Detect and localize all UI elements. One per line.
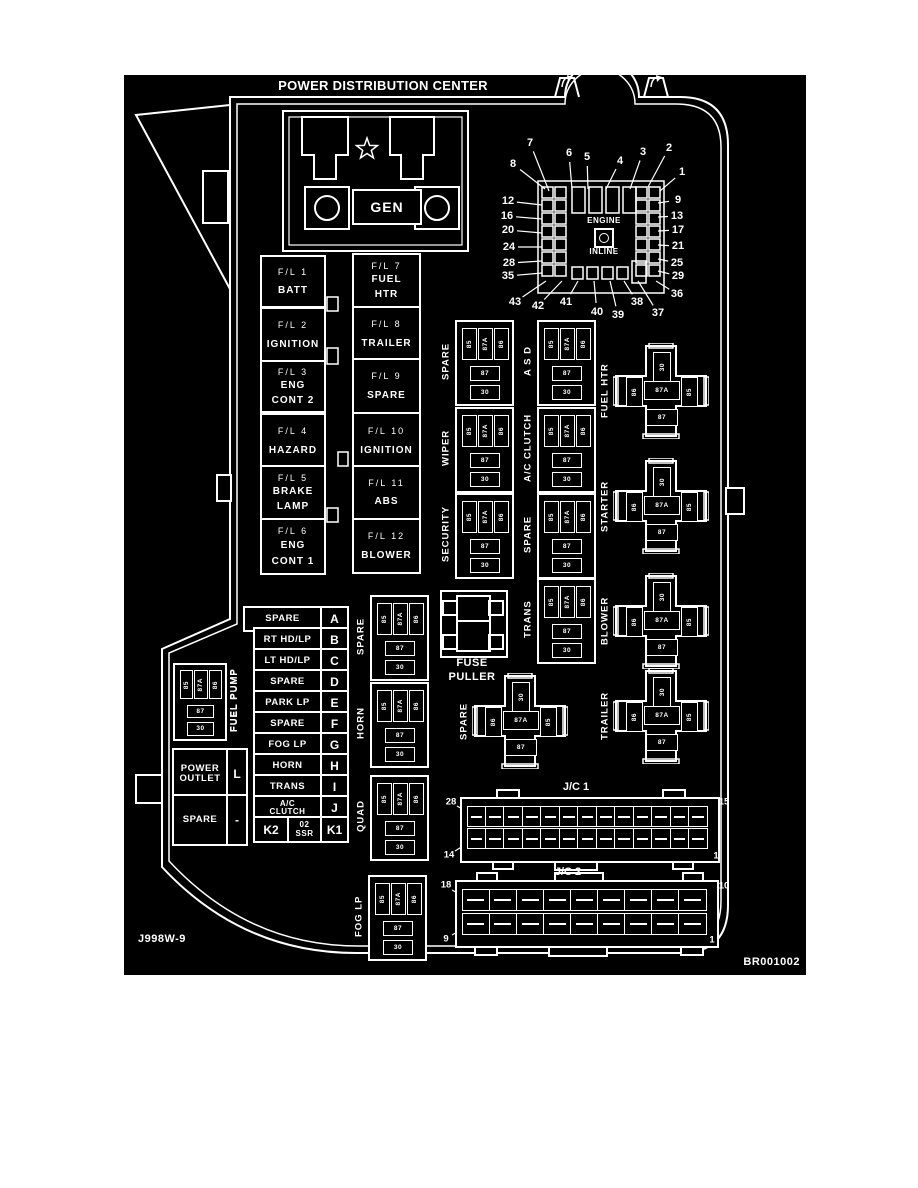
jc-corner-number: 15 (719, 797, 730, 808)
cross-pin: 87A (644, 381, 680, 400)
fuse-list-line: PARK LP (265, 698, 310, 708)
pentastar-icon (357, 138, 378, 158)
jc-corner-number: 1 (713, 851, 718, 862)
jc-pin-dash (508, 838, 520, 840)
pdc-diagram: POWER DISTRIBUTION CENTER GEN ENGINE INL… (124, 75, 806, 975)
jc-corner-number: 1 (709, 935, 714, 946)
power-outlet-letter: - (226, 796, 246, 844)
pin-label: 85 (381, 615, 388, 623)
relay-pin-87: 87 (470, 539, 500, 554)
mini-fuse-cavity (587, 267, 598, 279)
relay-label: TRANS (521, 578, 535, 660)
jc-pin-cell (570, 913, 599, 935)
relay-pin-85: 85 (544, 328, 559, 360)
callout-line (606, 169, 616, 189)
cross-pin: 85 (681, 607, 698, 637)
power-outlet-letter: L (226, 750, 246, 798)
pin-label: 85 (548, 427, 555, 435)
jc-pin-dash (637, 838, 649, 840)
doc-ref-left: J998W-9 (138, 933, 186, 945)
relay-pin-87A: 87A (393, 603, 408, 635)
pin-label: 87 (481, 457, 489, 464)
fl-id: F/L 6 (278, 526, 308, 536)
pin-label: 86 (580, 598, 587, 606)
jc-pin-cell (516, 913, 545, 935)
jc-pin-cell (651, 889, 680, 911)
jc-pin-dash (489, 838, 501, 840)
pin-label: 87 (196, 708, 204, 715)
fl-id: F/L 7 (371, 261, 401, 271)
relay-pin-87A: 87A (560, 586, 575, 618)
pin-label: 87A (655, 712, 668, 719)
fuel-pump-relay-label: FUEL PUMP (227, 663, 242, 737)
callout-line (648, 156, 665, 187)
pin-label: 85 (381, 795, 388, 803)
fusible-link-right-4: F/L 11ABS (352, 465, 421, 520)
relay-pin-30: 30 (385, 660, 415, 675)
k1-label: K1 (320, 818, 347, 841)
fl-name-line: LAMP (277, 501, 309, 513)
fuse-number: 24 (503, 241, 515, 253)
fuse-number: 12 (502, 195, 514, 207)
jc-pin-cell (670, 828, 690, 849)
relay-pin-87A: 87A (478, 415, 493, 447)
relay-pin-30: 30 (385, 747, 415, 762)
mini-fuse-cavity (636, 187, 647, 198)
fuse-number: 29 (672, 270, 684, 282)
relay-pin-85: 85 (377, 690, 392, 722)
pin-label: 30 (481, 389, 489, 396)
mini-fuse-cavity (555, 252, 566, 263)
pin-label: 30 (481, 476, 489, 483)
jc-pin-dash (563, 838, 575, 840)
jc-pin-dash (692, 838, 704, 840)
cross-pin: 85 (681, 702, 698, 732)
cross-relay-label: FUEL HTR (598, 343, 612, 439)
relay-pin-30: 30 (187, 722, 214, 736)
fl-id: F/L 1 (278, 267, 308, 277)
jc-pin-dash (655, 838, 667, 840)
relay-label: WIPER (439, 407, 453, 489)
jc-pin-dash (618, 816, 630, 818)
jc-pin-dash (576, 899, 593, 901)
jc-pin-dash (637, 816, 649, 818)
jc-pin-cell (559, 806, 579, 827)
power-outlet-label: POWEROUTLET (174, 750, 226, 798)
fuse-number: 2 (666, 142, 672, 154)
pin-label: 86 (631, 713, 638, 721)
cross-relay-0: 308687A8587 (613, 343, 709, 439)
jc-pin-dash (494, 923, 511, 925)
page: POWER DISTRIBUTION CENTER GEN ENGINE INL… (0, 0, 918, 1188)
fuse-number: 8 (510, 158, 516, 170)
pin-label: 30 (394, 944, 402, 951)
cross-pin: 87 (646, 524, 678, 541)
pin-label: 87A (655, 387, 668, 394)
callout-line (656, 281, 669, 289)
fuse-number: 25 (671, 257, 683, 269)
fuse-puller-graphic (440, 590, 508, 658)
fuse-number: 20 (502, 224, 514, 236)
fuse-number: 7 (527, 137, 533, 149)
maxi-fuse-cavity (589, 187, 602, 213)
relay-pin-86: 86 (409, 690, 424, 722)
relay-pin-87A: 87A (194, 670, 208, 699)
gen-post (302, 117, 348, 179)
mini-fuse-cavity (542, 252, 553, 263)
relay-label: QUAD (354, 775, 368, 857)
jc-pin-cell (614, 828, 634, 849)
pin-label: 85 (548, 513, 555, 521)
relay-label: SPARE (354, 595, 368, 677)
pin-label: 86 (580, 340, 587, 348)
jc-label: J/C 2 (555, 866, 581, 878)
gen-label: GEN (352, 189, 422, 225)
jc-pin-cell (651, 913, 680, 935)
fuse-number: 4 (617, 155, 623, 167)
jc-corner-number: 18 (441, 880, 452, 891)
pin-label: 87 (396, 825, 404, 832)
pin-label: 87A (395, 892, 402, 905)
pin-label: 85 (686, 713, 693, 721)
pin-label: 87A (397, 699, 404, 712)
gen-bay-inner (289, 117, 462, 245)
fl-id: F/L 10 (368, 426, 405, 436)
pin-label: 87 (394, 925, 402, 932)
pin-label: 30 (659, 363, 666, 371)
relay-pin-86: 86 (576, 328, 591, 360)
relay-pin-87A: 87A (391, 883, 406, 915)
relay-pin-30: 30 (470, 558, 500, 573)
relay-pin-87: 87 (552, 624, 582, 639)
mini-fuse-cavity (649, 213, 660, 224)
fuse-number: 36 (671, 288, 683, 300)
fuse-number: 43 (509, 296, 521, 308)
pin-label: 86 (631, 503, 638, 511)
cross-pin: 86 (626, 702, 643, 732)
jc-pin-cell (597, 913, 626, 935)
fl-id: F/L 9 (371, 371, 401, 381)
pin-label: 30 (518, 693, 525, 701)
maxi-fuse-cavity (606, 187, 619, 213)
cross-relay-1: 308687A8587 (613, 458, 709, 554)
pin-label: 85 (686, 618, 693, 626)
pin-label: 30 (563, 647, 571, 654)
fuse-number: 9 (675, 194, 681, 206)
jc-pin-cell (670, 806, 690, 827)
relay-pin-85: 85 (375, 883, 390, 915)
pin-label: 87 (658, 414, 666, 421)
jc-pin-dash (549, 899, 566, 901)
relay-pin-86: 86 (494, 501, 509, 533)
relay-pin-30: 30 (552, 472, 582, 487)
pin-label: 30 (396, 664, 404, 671)
callout-line (658, 217, 668, 218)
pin-label: 87 (563, 370, 571, 377)
fuse-list-line: SPARE (265, 614, 300, 624)
mini-fuse-cavity (542, 226, 553, 237)
relay-pin-87: 87 (470, 453, 500, 468)
fl-name-line: ENG (281, 540, 306, 552)
callout-line (533, 151, 549, 191)
relay-pin-30: 30 (385, 840, 415, 855)
relay-socket-7: 8587A868730 (370, 595, 429, 681)
pin-label: 86 (580, 513, 587, 521)
pin-label: 86 (490, 718, 497, 726)
callout-line (571, 281, 579, 294)
mini-fuse-cavity (542, 213, 553, 224)
mini-fuse-cavity (636, 226, 647, 237)
pin-label: 30 (659, 688, 666, 696)
mini-fuse-cavity (555, 265, 566, 276)
pin-label: 87A (482, 424, 489, 437)
mini-fuse-cavity (649, 200, 660, 211)
cross-pin: 87A (644, 706, 680, 725)
fuse-list-line: HORN (273, 761, 303, 771)
pin-label: 87A (197, 678, 204, 691)
callout-line (630, 161, 640, 190)
relay-socket-0: 8587A868730 (455, 320, 514, 406)
callout-line (587, 166, 588, 189)
fuse-number: 1 (679, 166, 685, 178)
relay-pin-87A: 87A (393, 690, 408, 722)
fuse-list-line: SPARE (270, 677, 305, 687)
jc-pin-dash (674, 816, 686, 818)
pin-label: 87 (563, 543, 571, 550)
fl-name-line: HAZARD (269, 445, 317, 457)
fl-name-line: BATT (278, 285, 308, 297)
fusible-link-right-5: F/L 12BLOWER (352, 518, 421, 574)
pin-label: 87A (397, 792, 404, 805)
jc-pin-cell (651, 828, 671, 849)
k2-label: K2 (255, 818, 287, 841)
pin-label: 86 (413, 615, 420, 623)
pin-label: 30 (396, 844, 404, 851)
jc-pin-dash (600, 838, 612, 840)
jc-pin-dash (657, 923, 674, 925)
pin-label: 85 (548, 598, 555, 606)
relay-pin-85: 85 (462, 501, 477, 533)
pin-label: 86 (631, 618, 638, 626)
pin-label: 87A (655, 617, 668, 624)
pin-label: 86 (631, 388, 638, 396)
jc-pin-dash (563, 816, 575, 818)
jc-corner-number: 9 (443, 934, 448, 945)
pin-label: 30 (563, 476, 571, 483)
relay-pin-87: 87 (552, 453, 582, 468)
gen-terminal-circle (425, 196, 449, 220)
relay-label: SECURITY (439, 493, 453, 575)
mini-fuse-cavity (572, 267, 583, 279)
fl-id: F/L 3 (278, 367, 308, 377)
pin-label: 30 (659, 478, 666, 486)
side-tab (217, 475, 231, 501)
relay-pin-87: 87 (552, 539, 582, 554)
jc-pin-dash (655, 816, 667, 818)
relay-label: HORN (354, 682, 368, 764)
fl-name-line: SPARE (367, 390, 406, 402)
jc-pin-dash (489, 816, 501, 818)
fl-name-line: TRAILER (361, 338, 411, 350)
relay-socket-8: 8587A868730 (370, 682, 429, 768)
doc-ref-right: BR001002 (684, 956, 800, 968)
pin-label: 87A (564, 424, 571, 437)
relay-pin-86: 86 (407, 883, 422, 915)
pin-label: 87 (396, 645, 404, 652)
callout-line (660, 178, 675, 191)
jc-pin-cell (624, 889, 653, 911)
jc-label: J/C 1 (563, 781, 589, 793)
relay-socket-2: 8587A868730 (455, 407, 514, 493)
fl-id: F/L 11 (368, 478, 405, 488)
mini-fuse-cavity (636, 200, 647, 211)
power-outlet-row: POWEROUTLETL (172, 748, 248, 800)
jc-pin-cell (596, 828, 616, 849)
relay-pin-87: 87 (187, 705, 214, 719)
fuse-number: 16 (501, 210, 513, 222)
pin-label: 86 (580, 427, 587, 435)
fl-id: F/L 4 (278, 426, 308, 436)
cross-pin: 87A (644, 611, 680, 630)
cross-pin: 30 (653, 582, 671, 612)
cross-pin: 86 (626, 492, 643, 522)
relay-pin-85: 85 (544, 415, 559, 447)
cross-relay-2: 308687A8587 (613, 573, 709, 669)
fusible-link-right-0: F/L 7FUELHTR (352, 253, 421, 308)
pin-label: 87 (658, 739, 666, 746)
corner-wedge (136, 105, 230, 289)
fusible-link-left-2: F/L 3ENGCONT 2 (260, 360, 326, 413)
jc-pin-dash (674, 838, 686, 840)
relay-pin-30: 30 (383, 940, 413, 955)
fuse-number: 28 (503, 257, 515, 269)
fuse-list-line: LT HD/LP (264, 656, 310, 666)
fl-name-line: IGNITION (267, 339, 319, 351)
jc-pin-cell (688, 828, 708, 849)
fusible-link-left-3: F/L 4HAZARD (260, 413, 326, 470)
jc-pin-cell (462, 913, 491, 935)
jc-pin-cell (467, 828, 487, 849)
jc-pin-row (463, 913, 707, 935)
jc-pin-cell (489, 889, 518, 911)
pin-label: 87A (564, 337, 571, 350)
relay-pin-85: 85 (377, 783, 392, 815)
maxi-fuse-cavity (572, 187, 585, 213)
jc-pin-dash (684, 923, 701, 925)
jc-pin-cell (559, 828, 579, 849)
jc-pin-cell (485, 806, 505, 827)
relay-pin-87: 87 (385, 821, 415, 836)
jc-pin-dash (618, 838, 630, 840)
relay-label: SPARE (521, 493, 535, 575)
relay-pin-85: 85 (462, 415, 477, 447)
gen-terminal-left (305, 187, 349, 229)
fuse-list-line: TRANS (270, 782, 305, 792)
pin-label: 86 (498, 340, 505, 348)
fl-tab (338, 452, 348, 466)
cross-pin: 87 (646, 734, 678, 751)
gen-post (390, 117, 434, 179)
jc-pin-dash (471, 838, 483, 840)
o2-ssr-label: 02SSR (287, 818, 320, 841)
pin-label: 30 (396, 751, 404, 758)
fuse-list-line: FOG LP (268, 740, 306, 750)
relay-pin-85: 85 (377, 603, 392, 635)
cross-pin: 86 (485, 707, 502, 737)
jc-pin-dash (526, 816, 538, 818)
jc-pin-dash (467, 899, 484, 901)
relay-pin-87A: 87A (478, 501, 493, 533)
relay-socket-1: 8587A868730 (537, 320, 596, 406)
pin-label: 30 (563, 389, 571, 396)
jc-pin-dash (522, 899, 539, 901)
jc-pin-dash (603, 923, 620, 925)
cross-pin: 87 (646, 409, 678, 426)
cross-relay-3: 308687A8587 (613, 668, 709, 764)
fuse-puller-divider (458, 620, 489, 622)
cross-pin: 87A (644, 496, 680, 515)
jc-pin-dash (657, 899, 674, 901)
jc-pin-cell (577, 806, 597, 827)
relay-pin-30: 30 (552, 558, 582, 573)
pin-label: 87A (564, 510, 571, 523)
pin-label: 85 (545, 718, 552, 726)
fuse-number: 41 (560, 296, 572, 308)
cross-relay-label: BLOWER (598, 573, 612, 669)
fl-name-line: BLOWER (361, 550, 411, 562)
jc-pin-dash (467, 923, 484, 925)
relay-label: SPARE (439, 320, 453, 402)
callout-line (523, 281, 547, 297)
relay-label: A/C CLUTCH (521, 407, 535, 489)
inline-fuses-label: INLINE (568, 247, 640, 256)
mini-fuse-cavity (602, 267, 613, 279)
fuse-number: 3 (640, 146, 646, 158)
fuse-number: 6 (566, 147, 572, 159)
fl-tab (327, 508, 338, 522)
cross-relay-4: 308687A8587 (472, 673, 568, 769)
callout-line (658, 245, 669, 246)
pin-label: 87 (563, 457, 571, 464)
pin-label: 87A (514, 717, 527, 724)
fuse-number: 17 (672, 224, 684, 236)
mini-fuse-cavity (555, 239, 566, 250)
fl-name-line: ABS (374, 496, 398, 508)
fuse-number: 40 (591, 306, 603, 318)
mini-fuse-cavity (542, 200, 553, 211)
cross-relay-label: TRAILER (598, 668, 612, 764)
pin-label: 87A (482, 337, 489, 350)
pin-label: 85 (466, 340, 473, 348)
pin-label: 87 (563, 628, 571, 635)
mini-fuse-cavity (555, 213, 566, 224)
pin-label: 87A (482, 510, 489, 523)
relay-pin-87: 87 (383, 921, 413, 936)
cross-pin: 87 (505, 739, 537, 756)
side-tab (726, 488, 744, 514)
power-outlet-box: POWEROUTLETLSPARE- (172, 748, 248, 844)
relay-pin-86: 86 (494, 328, 509, 360)
jc-corner-number: 14 (444, 850, 455, 861)
socket-circle (599, 233, 609, 243)
cross-pin: 85 (681, 492, 698, 522)
fuse-list-row-K: K202SSRK1 (253, 816, 349, 843)
mini-fuse-cavity (617, 267, 628, 279)
jc-pin-cell (624, 913, 653, 935)
pin-label: 87 (481, 370, 489, 377)
jc-pin-cell (522, 806, 542, 827)
relay-pin-30: 30 (552, 643, 582, 658)
